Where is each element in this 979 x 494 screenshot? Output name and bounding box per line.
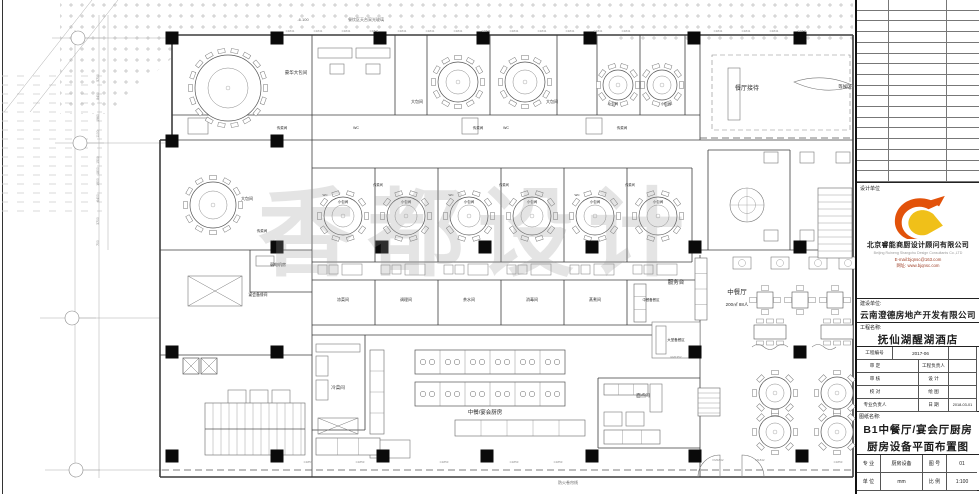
chair bbox=[521, 191, 529, 197]
company-email: E-mail:bjqnsc@163.com bbox=[860, 257, 976, 262]
room-label: 中餐/宴会厨房 bbox=[468, 408, 503, 416]
round-dining-table bbox=[190, 182, 236, 228]
dimension-text: 6400 bbox=[96, 194, 100, 202]
chair bbox=[472, 191, 480, 197]
window-tag: C1853 bbox=[356, 460, 365, 464]
logo-swirl-yellow bbox=[908, 210, 943, 235]
revision-cell bbox=[947, 139, 979, 150]
structural-column bbox=[481, 450, 494, 463]
revision-cell bbox=[889, 86, 948, 97]
furniture bbox=[356, 48, 390, 58]
chair bbox=[772, 371, 779, 375]
revision-cell bbox=[889, 64, 948, 75]
chair bbox=[819, 414, 827, 422]
chair bbox=[433, 90, 440, 98]
room-label: 小包间 bbox=[464, 199, 475, 204]
room-label: 大堂备餐区 bbox=[667, 337, 685, 342]
chair bbox=[444, 213, 448, 220]
dimension-text: 1100 bbox=[96, 130, 100, 137]
lead-label: 专业负责人 bbox=[857, 399, 893, 412]
room-label: 小包间 bbox=[661, 101, 672, 106]
revision-cell bbox=[947, 54, 979, 65]
revision-cell bbox=[889, 161, 948, 172]
furniture bbox=[764, 152, 778, 163]
room-label: 大包间 bbox=[411, 98, 423, 104]
chair bbox=[647, 191, 655, 197]
project-no-label: 工程编号 bbox=[857, 347, 893, 360]
floor-plan-area: 570084001960110015001800150064003700700C… bbox=[0, 0, 855, 494]
chair bbox=[785, 298, 792, 303]
window-tag: C1841 bbox=[622, 29, 631, 33]
chair bbox=[636, 82, 640, 89]
window-tag: C1841 bbox=[482, 29, 491, 33]
room-label: 中餐备餐区 bbox=[643, 297, 661, 302]
project-name-label: 工程名称: bbox=[860, 324, 976, 331]
chair bbox=[620, 63, 628, 69]
chair bbox=[484, 226, 491, 234]
structural-column bbox=[271, 241, 284, 254]
chair bbox=[554, 213, 558, 220]
revision-cell bbox=[857, 96, 889, 107]
square-table bbox=[827, 292, 843, 308]
chair bbox=[383, 198, 390, 206]
structural-column bbox=[584, 32, 597, 45]
chair bbox=[832, 286, 839, 291]
title-block: 设计单位 北京睿能商厨设计顾问有限公司 Beijing Ruineng Shan… bbox=[855, 0, 979, 494]
structural-column bbox=[271, 135, 284, 148]
furniture bbox=[316, 356, 328, 376]
revision-cell bbox=[947, 21, 979, 32]
chair bbox=[819, 375, 827, 383]
chair bbox=[522, 56, 529, 60]
review-label: 审 核 bbox=[857, 373, 893, 386]
window-tag: C1841 bbox=[314, 29, 323, 33]
chair bbox=[509, 57, 517, 64]
chair bbox=[753, 429, 757, 436]
chair bbox=[481, 79, 485, 86]
chair bbox=[620, 101, 628, 107]
chair bbox=[484, 198, 491, 206]
chair bbox=[834, 341, 841, 345]
draw-value bbox=[949, 386, 977, 399]
chair bbox=[608, 63, 616, 69]
chair bbox=[641, 82, 645, 89]
chair bbox=[233, 187, 240, 195]
chair bbox=[599, 92, 606, 100]
round-dining-table bbox=[647, 70, 677, 100]
chair bbox=[253, 60, 261, 68]
sink bbox=[581, 265, 590, 274]
chair bbox=[674, 92, 681, 100]
approval-table: 工程编号 2017-06 审 定 工程负责人 审 核 设 计 校 对 绘 图 专… bbox=[857, 347, 979, 412]
window-tag: C1841 bbox=[538, 29, 547, 33]
room-label: -6.100 bbox=[297, 17, 309, 22]
chair bbox=[195, 60, 203, 68]
dimension-text: 1500 bbox=[96, 156, 100, 164]
chair bbox=[358, 198, 365, 206]
chair bbox=[509, 100, 517, 107]
chair bbox=[824, 341, 831, 345]
chair bbox=[231, 48, 239, 53]
chair bbox=[395, 235, 403, 241]
chair bbox=[189, 85, 193, 92]
chair bbox=[674, 70, 681, 78]
chair bbox=[824, 319, 831, 323]
dimension-text: 1960 bbox=[96, 114, 100, 122]
chair bbox=[543, 66, 550, 74]
revision-cell bbox=[857, 107, 889, 118]
chair bbox=[680, 213, 684, 220]
chair bbox=[610, 198, 617, 206]
company-website: 网址: www.bjqnsc.com bbox=[860, 263, 976, 269]
door-tag: FM1842 bbox=[712, 458, 723, 462]
service-counter bbox=[342, 264, 362, 275]
furniture bbox=[836, 152, 850, 163]
furniture bbox=[800, 152, 814, 163]
revision-cell bbox=[857, 150, 889, 161]
chair bbox=[383, 226, 390, 234]
drawing-name-section: 图纸名称: B1中餐厅/宴会厅厨房 厨房设备平面布置图 bbox=[857, 412, 979, 455]
unit-value: mm bbox=[881, 473, 923, 491]
service-counter bbox=[531, 264, 551, 275]
chair bbox=[264, 85, 268, 92]
revision-cell bbox=[889, 43, 948, 54]
major-value: 厨房设备 bbox=[881, 455, 923, 473]
chair bbox=[421, 198, 428, 206]
revision-cell bbox=[857, 128, 889, 139]
chair bbox=[762, 310, 769, 315]
chair bbox=[433, 66, 440, 74]
room-label: 小包间 bbox=[653, 199, 664, 204]
chair bbox=[533, 100, 541, 107]
sink bbox=[392, 265, 401, 274]
revision-cell bbox=[889, 11, 948, 22]
lead-value bbox=[893, 399, 919, 412]
chief-label: 工程负责人 bbox=[919, 360, 949, 373]
chair bbox=[442, 100, 450, 107]
service-counter bbox=[405, 264, 425, 275]
dimension-text: 1800 bbox=[96, 167, 100, 175]
structural-column bbox=[271, 346, 284, 359]
structural-column bbox=[688, 32, 701, 45]
chair bbox=[647, 235, 655, 241]
round-dining-table bbox=[821, 416, 853, 448]
room-label: 服务台 bbox=[668, 278, 685, 286]
chair bbox=[848, 404, 855, 412]
chair bbox=[409, 191, 417, 197]
revision-cell bbox=[889, 54, 948, 65]
room-label: WC bbox=[323, 193, 329, 197]
chair bbox=[680, 82, 684, 89]
furniture bbox=[250, 390, 268, 404]
revision-cell bbox=[889, 139, 948, 150]
revision-cell bbox=[857, 139, 889, 150]
window-tag: C1841 bbox=[454, 29, 463, 33]
dimension-text: 3700 bbox=[96, 217, 100, 225]
chair bbox=[509, 226, 516, 234]
chair bbox=[358, 226, 365, 234]
wall-side-table bbox=[733, 257, 751, 269]
round-dining-table bbox=[821, 377, 853, 409]
sink bbox=[455, 265, 464, 274]
date-value: 2018-03-01 bbox=[949, 399, 977, 412]
square-table bbox=[792, 292, 808, 308]
chair bbox=[584, 191, 592, 197]
chair bbox=[598, 235, 606, 241]
chair bbox=[332, 235, 340, 241]
chair bbox=[633, 213, 637, 220]
room-label: WC bbox=[575, 193, 581, 197]
round-dining-table bbox=[505, 62, 545, 102]
stair bbox=[698, 388, 720, 416]
chair bbox=[476, 66, 483, 74]
chair bbox=[458, 235, 466, 241]
chair bbox=[491, 213, 495, 220]
rect-table-6 bbox=[754, 325, 786, 339]
chair bbox=[757, 443, 765, 451]
company-logo-dragon-icon bbox=[889, 193, 947, 239]
revision-cell bbox=[947, 86, 979, 97]
structural-column bbox=[479, 241, 492, 254]
chair bbox=[547, 226, 554, 234]
chair bbox=[844, 298, 851, 303]
proof-value bbox=[893, 386, 919, 399]
chair bbox=[472, 235, 480, 241]
wall-side-table bbox=[809, 257, 827, 269]
chair bbox=[617, 213, 621, 220]
chair bbox=[767, 319, 774, 323]
chair bbox=[533, 57, 541, 64]
chair bbox=[797, 286, 804, 291]
revision-cell bbox=[857, 118, 889, 129]
chair bbox=[381, 213, 385, 220]
chair bbox=[820, 298, 827, 303]
revision-cell bbox=[857, 86, 889, 97]
door-tag: FM1352 bbox=[670, 355, 681, 359]
chair bbox=[500, 66, 507, 74]
window-tag: C1841 bbox=[286, 29, 295, 33]
chair bbox=[186, 187, 193, 195]
structural-column bbox=[586, 450, 599, 463]
window-tag: C1841 bbox=[566, 29, 575, 33]
revision-cell bbox=[889, 0, 948, 11]
revision-cell bbox=[947, 96, 979, 107]
structural-column bbox=[271, 450, 284, 463]
furniture bbox=[272, 390, 290, 404]
drawing-name-label: 图纸名称: bbox=[859, 413, 977, 420]
chair bbox=[572, 198, 579, 206]
revision-cell bbox=[889, 118, 948, 129]
grid-axis-bubble bbox=[71, 31, 85, 45]
chair bbox=[543, 90, 550, 98]
room-label: 小包间 bbox=[590, 199, 601, 204]
round-dining-table bbox=[438, 62, 478, 102]
revision-cell bbox=[947, 128, 979, 139]
room-label: 面点间 bbox=[636, 392, 650, 399]
room-label: 调理间 bbox=[400, 296, 412, 302]
round-dining-table bbox=[759, 377, 791, 409]
room-label: 宴会备餐间 bbox=[249, 292, 268, 297]
window-tag: C1841 bbox=[342, 29, 351, 33]
revision-cell bbox=[947, 11, 979, 22]
revision-cell bbox=[889, 150, 948, 161]
round-dining-table bbox=[195, 55, 261, 121]
sheet-info-table: 专 业 厨房设备 图 号 01 单 位 mm 比 例 1:100 bbox=[857, 455, 979, 491]
service-counter bbox=[594, 264, 614, 275]
scale-label: 比 例 bbox=[923, 473, 947, 491]
structural-column bbox=[271, 32, 284, 45]
chair bbox=[190, 71, 196, 79]
room-label: 茶水间 bbox=[463, 296, 475, 302]
chair bbox=[809, 298, 816, 303]
structural-column bbox=[374, 32, 387, 45]
major-label: 专 业 bbox=[857, 455, 881, 473]
chair bbox=[184, 202, 188, 209]
furniture bbox=[316, 380, 328, 400]
revision-cell bbox=[947, 0, 979, 11]
room-label: 凉菜间 bbox=[337, 296, 349, 302]
window-tag: C1841 bbox=[798, 29, 807, 33]
chair bbox=[815, 429, 819, 436]
revision-cell bbox=[857, 32, 889, 43]
chair bbox=[834, 451, 841, 455]
chair bbox=[446, 198, 453, 206]
sink bbox=[329, 265, 338, 274]
sheet-no-value: 01 bbox=[947, 455, 977, 473]
company-name-en: Beijing Ruineng Shangchu Design Consulta… bbox=[860, 251, 976, 255]
chair bbox=[395, 191, 403, 197]
revision-cell bbox=[857, 21, 889, 32]
window-tag: C1841 bbox=[770, 29, 779, 33]
revision-cell bbox=[947, 64, 979, 75]
furniture bbox=[656, 326, 666, 354]
chair bbox=[346, 191, 354, 197]
chair bbox=[522, 105, 529, 109]
chair bbox=[786, 404, 794, 412]
sink bbox=[318, 265, 327, 274]
room-label: 传菜间 bbox=[277, 125, 288, 130]
proof-label: 校 对 bbox=[857, 386, 893, 399]
chair bbox=[794, 429, 798, 436]
chair bbox=[243, 52, 251, 59]
revision-cell bbox=[857, 0, 889, 11]
chair bbox=[757, 414, 765, 422]
revision-cell bbox=[889, 171, 948, 182]
furniture bbox=[626, 412, 644, 426]
revision-cell bbox=[947, 118, 979, 129]
window-tag: C1841 bbox=[594, 29, 603, 33]
revision-cell bbox=[947, 43, 979, 54]
unit-label: 单 位 bbox=[857, 473, 881, 491]
approve-label: 审 定 bbox=[857, 360, 893, 373]
wall-side-table bbox=[839, 257, 855, 269]
dimension-text: 8400 bbox=[96, 92, 100, 100]
chair bbox=[848, 443, 855, 451]
structural-column bbox=[689, 241, 702, 254]
design-label: 设 计 bbox=[919, 373, 949, 386]
project-no-value: 2017-06 bbox=[893, 347, 949, 360]
chair bbox=[365, 213, 369, 220]
grid-axis-bubble bbox=[65, 311, 79, 325]
revision-cell bbox=[947, 161, 979, 172]
chair bbox=[844, 319, 851, 323]
chair bbox=[750, 298, 757, 303]
revision-cell bbox=[947, 32, 979, 43]
revision-cell bbox=[947, 75, 979, 86]
room-label: 200㎡ 88人 bbox=[726, 301, 749, 307]
chair bbox=[535, 235, 543, 241]
approve-value bbox=[893, 360, 919, 373]
structural-column bbox=[689, 450, 702, 463]
structural-column bbox=[166, 450, 179, 463]
kitchen-counter bbox=[604, 430, 660, 444]
room-label: 中餐厅 bbox=[727, 287, 747, 296]
round-dining-table bbox=[759, 416, 791, 448]
chair bbox=[774, 298, 781, 303]
room-label: 小包间 bbox=[527, 199, 538, 204]
kitchen-counter bbox=[316, 438, 380, 455]
client-label: 建设单位: bbox=[860, 300, 976, 307]
chair bbox=[772, 451, 779, 455]
chair bbox=[652, 101, 660, 107]
structural-column bbox=[794, 32, 807, 45]
chair bbox=[772, 410, 779, 414]
window-tag: C1841 bbox=[398, 29, 407, 33]
structural-column bbox=[796, 450, 809, 463]
chair bbox=[635, 198, 642, 206]
chair bbox=[661, 235, 669, 241]
chair bbox=[572, 226, 579, 234]
chair bbox=[205, 52, 213, 59]
window-tag: C1853 bbox=[554, 460, 563, 464]
chair bbox=[610, 226, 617, 234]
chair bbox=[186, 215, 193, 223]
chair bbox=[421, 226, 428, 234]
room-label: 等候区 bbox=[838, 83, 852, 90]
room-label: 传菜间 bbox=[473, 125, 484, 130]
room-label: 传菜间 bbox=[499, 182, 509, 187]
chair bbox=[455, 105, 462, 109]
chair bbox=[500, 90, 507, 98]
company-name-cn: 北京睿能商厨设计顾问有限公司 bbox=[860, 240, 976, 250]
room-label: 弱电机房 bbox=[270, 261, 286, 267]
chair bbox=[409, 235, 417, 241]
chair bbox=[673, 198, 680, 206]
room-label: WC bbox=[503, 126, 509, 130]
drawing-sheet: 570084001960110015001800150064003700700C… bbox=[0, 0, 979, 494]
review-value bbox=[893, 373, 919, 386]
structural-column bbox=[166, 135, 179, 148]
chair bbox=[260, 71, 266, 79]
window-tag: C1841 bbox=[510, 29, 519, 33]
furniture bbox=[586, 118, 602, 134]
furniture bbox=[228, 390, 246, 404]
revision-cell bbox=[889, 21, 948, 32]
furniture bbox=[604, 412, 622, 426]
chair bbox=[239, 202, 243, 209]
sink bbox=[633, 265, 642, 274]
structural-column bbox=[794, 241, 807, 254]
room-label: 餐饮区天台采光玻璃 bbox=[348, 16, 384, 22]
chair bbox=[195, 225, 203, 232]
room-label: WC bbox=[353, 126, 359, 130]
revision-cell bbox=[857, 54, 889, 65]
chair bbox=[218, 48, 226, 53]
chair bbox=[597, 82, 601, 89]
chair bbox=[673, 226, 680, 234]
window-tag: C1853 bbox=[304, 460, 313, 464]
scale-value: 1:100 bbox=[947, 473, 977, 491]
